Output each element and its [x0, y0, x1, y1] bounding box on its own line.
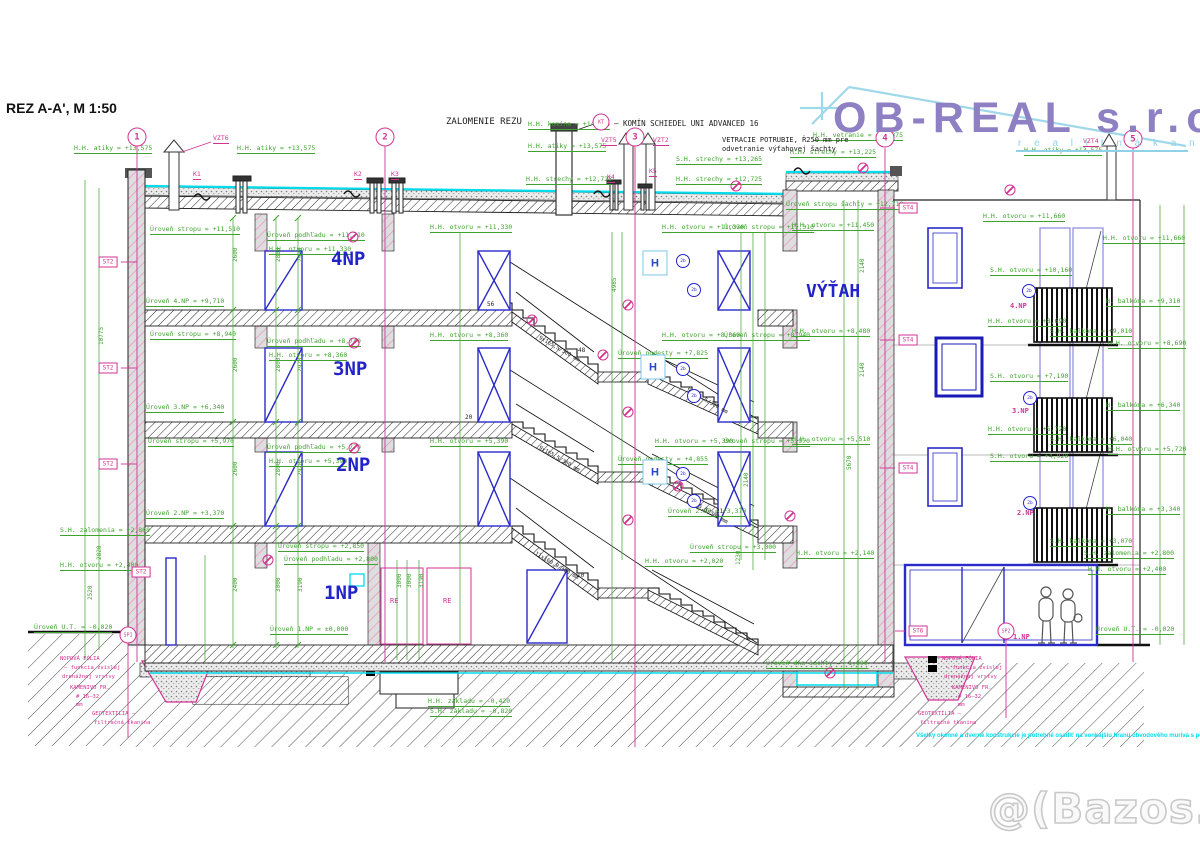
ground-slab [145, 645, 893, 663]
bazos-watermark: @(Bazos.sk [988, 784, 1200, 833]
facade-windows [928, 228, 982, 506]
parapet-shaft [890, 166, 902, 176]
entry-door-jamb [166, 558, 176, 645]
re-cabinets [381, 568, 471, 644]
interior-wall-1np [368, 543, 380, 645]
logo-underline [1016, 150, 1188, 152]
pit-floor [783, 687, 894, 697]
floor-slabs [145, 310, 893, 673]
logo-brand-text: OB-REAL s.r.o. [833, 94, 1200, 143]
elevator-shaft-walls [783, 190, 894, 697]
right-facade [893, 200, 1140, 645]
drawing-title: REZ A-A', M 1:50 [6, 100, 117, 116]
exterior-wall-left [128, 170, 145, 645]
construction-note: Všetky okenné a dverné konštrukcie je po… [916, 733, 1200, 739]
logo-tagline-text: r e a l i t n á k a n c e l á r i a [1018, 138, 1200, 149]
storefront-1np [905, 565, 1097, 645]
window-highlighted [936, 338, 982, 396]
pk-marker-cyan [350, 574, 364, 586]
balcony-railings [1028, 288, 1118, 565]
architectural-section-drawing: H.H. atiky = +13,575H.H. atiky = +13,575… [0, 0, 1200, 849]
